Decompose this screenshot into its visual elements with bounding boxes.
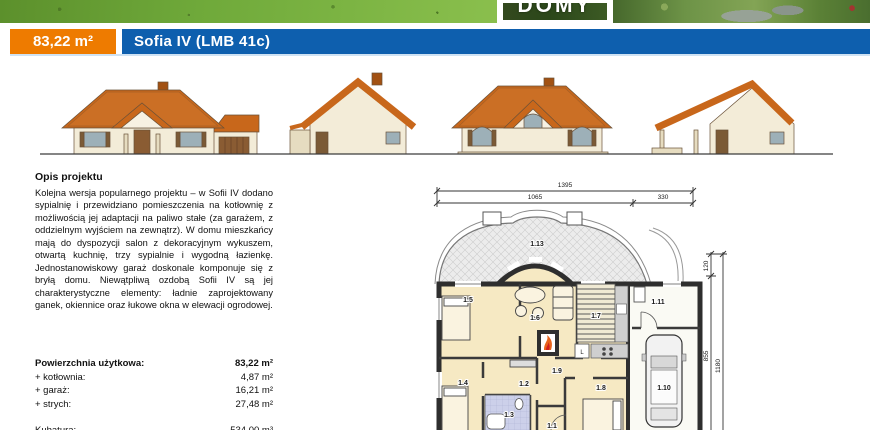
area-row-label: + kotłownia: [35,371,85,385]
area-row: + strych: 27,48 m² [35,398,273,412]
armchair [516,306,527,317]
bathtub [487,414,505,429]
area-table: Powierzchnia użytkowa: 83,22 m² + kotłow… [35,357,273,411]
floor-plan: L [425,178,825,430]
elevation-garden [452,78,612,154]
area-row-label: + garaż: [35,384,70,398]
room-label-1-1: 1.1 [547,423,557,430]
toilet [515,399,523,410]
elevation-side-left [290,73,414,154]
area-row-label: + strych: [35,398,71,412]
area-badge: 83,22 m² [10,29,116,54]
room-label-1-10: 1.10 [657,385,671,392]
room-label-1-5: 1.5 [463,297,473,304]
canopy-arc [653,228,683,282]
area-row-value: 27,48 m² [236,398,274,412]
dim-1180-label: 1180 [715,359,722,373]
area-row-label: Powierzchnia użytkowa: [35,357,144,371]
title-banner: Sofia IV (LMB 41c) [122,29,870,54]
room-label-1-3: 1.3 [504,412,514,419]
dim-330-label: 330 [658,194,669,201]
grass-photo [0,0,497,23]
room-label-1-13: 1.13 [530,241,544,248]
fireplace-icon [537,330,559,356]
area-row-value: 16,21 m² [236,384,274,398]
volume-row: Kubatura: 534,00 m³ [35,424,273,430]
description-heading: Opis projektu [35,171,273,183]
project-description: Opis projektu Kolejna wersja popularnego… [35,171,273,312]
area-row: + garaż: 16,21 m² [35,384,273,398]
room-label-1-9: 1.9 [552,368,562,375]
brochure-page: DOMY 83,22 m² Sofia IV (LMB 41c) [0,0,870,430]
canopy-arc-inner [649,230,678,282]
wardrobe [510,360,536,367]
dim-855-label: 855 [703,350,710,361]
room-label-1-11: 1.11 [651,299,664,306]
elevation-drawings [0,64,870,168]
area-row-value: 4,87 m² [241,371,273,385]
room-label-1-7: 1.7 [591,313,601,320]
description-body: Kolejna wersja popularnego projektu – w … [35,187,273,312]
brand-logo: DOMY [500,0,610,23]
room-label-1-2: 1.2 [519,381,529,388]
banner-underline [10,54,870,56]
pond-photo [613,0,870,23]
area-row: Powierzchnia użytkowa: 83,22 m² [35,357,273,371]
room-label-1-4: 1.4 [458,380,468,387]
sofa [553,286,573,320]
coffee-table [515,287,545,303]
elevation-front [62,82,259,154]
area-row: + kotłownia: 4,87 m² [35,371,273,385]
elevation-side-right [652,84,794,154]
room-label-1-8: 1.8 [596,385,606,392]
room-label-1-6: 1.6 [530,315,540,322]
dim-1065-label: 1065 [528,194,543,201]
logo-text: DOMY [503,0,607,18]
volume-label: Kubatura: [35,424,76,430]
bay-window-slot [529,257,542,262]
dim-120-label: 120 [703,260,710,271]
area-row-value: 83,22 m² [235,357,273,371]
garage-car [642,335,686,427]
dim-total-label: 1395 [558,182,573,189]
volume-value: 534,00 m³ [230,424,273,430]
